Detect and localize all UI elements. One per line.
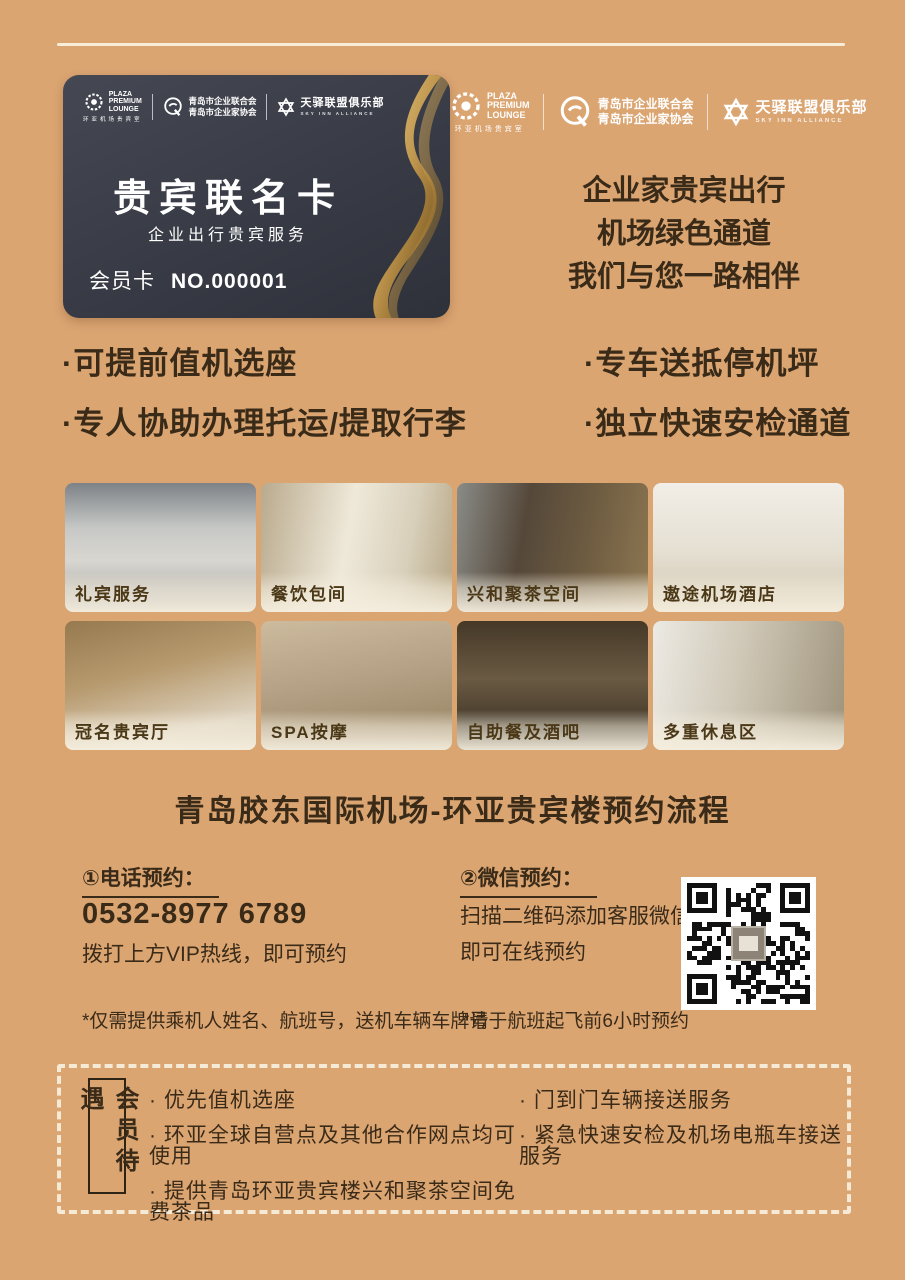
photo-gallery: 礼宾服务 餐饮包间 兴和聚茶空间 遨途机场酒店 冠名贵宾厅 SPA按摩 自助餐及… bbox=[65, 483, 846, 750]
top-divider-line bbox=[57, 43, 845, 46]
logo-qingdao-enterprise: 青岛市企业联合会 青岛市企业家协会 bbox=[162, 96, 257, 118]
logo-text: LOUNGE bbox=[109, 106, 142, 113]
qr-finder-top-left bbox=[687, 883, 717, 913]
tagline-line3: 我们与您一路相伴 bbox=[498, 256, 870, 299]
logo-plaza-premium-lounge: PLAZA PREMIUM LOUNGE 环亚机场贵宾室 bbox=[83, 91, 143, 123]
feature-list-right: ·专车送抵停机坪 ·独立快速安检通道 bbox=[584, 348, 851, 468]
logo-text-cn: 天驿联盟俱乐部 bbox=[756, 99, 868, 118]
logo-text: PREMIUM bbox=[109, 98, 142, 105]
logo-separator bbox=[707, 94, 708, 130]
feature-list-left: ·可提前值机选座 ·专人协助办理托运/提取行李 bbox=[62, 348, 467, 468]
tagline-line2: 机场绿色通道 bbox=[498, 213, 870, 256]
logo-qingdao-enterprise: 青岛市企业联合会 青岛市企业家协会 bbox=[557, 94, 694, 130]
logo-sky-inn-alliance: 天驿联盟俱乐部 SKY INN ALLIANCE bbox=[276, 97, 385, 117]
wechat-instruction-line2: 即可在线预约 bbox=[460, 936, 586, 966]
photo-label: 冠名贵宾厅 bbox=[65, 710, 256, 750]
footnote-right: *请于航班起飞前6小时预约 bbox=[462, 1006, 689, 1033]
wechat-booking-heading: ②微信预约： bbox=[460, 862, 597, 898]
membership-card: PLAZA PREMIUM LOUNGE 环亚机场贵宾室 青岛市 bbox=[63, 75, 450, 318]
benefit-item: · 环亚全球自营点及其他合作网点均可使用 bbox=[149, 1125, 529, 1167]
qr-finder-bottom-left bbox=[687, 974, 717, 1004]
logo-plaza-premium-lounge: PLAZA PREMIUM LOUNGE 环亚机场贵宾室 bbox=[450, 90, 530, 134]
photo-label: 礼宾服务 bbox=[65, 572, 256, 612]
card-subtitle: 企业出行贵宾服务 bbox=[63, 221, 393, 245]
benefit-item: · 优先值机选座 bbox=[149, 1090, 529, 1111]
gallery-photo-buffet-bar: 自助餐及酒吧 bbox=[457, 621, 648, 750]
tagline-line1: 企业家贵宾出行 bbox=[498, 170, 870, 213]
phone-number: 0532-8977 6789 bbox=[82, 898, 307, 931]
gallery-photo-spa: SPA按摩 bbox=[261, 621, 452, 750]
photo-label: 多重休息区 bbox=[653, 710, 844, 750]
gallery-photo-rest-area: 多重休息区 bbox=[653, 621, 844, 750]
photo-label: SPA按摩 bbox=[261, 710, 452, 750]
member-no: NO.000001 bbox=[171, 270, 287, 293]
logo-text-cn: 环亚机场贵宾室 bbox=[455, 124, 525, 134]
member-benefits-box: 会员待遇 · 优先值机选座 · 环亚全球自营点及其他合作网点均可使用 · 提供青… bbox=[57, 1064, 851, 1214]
gallery-photo-tea-space: 兴和聚茶空间 bbox=[457, 483, 648, 612]
qr-finder-top-right bbox=[780, 883, 810, 913]
sky-inn-star-icon bbox=[721, 97, 751, 127]
qr-center-logo bbox=[731, 926, 766, 961]
feature-item: ·专车送抵停机坪 bbox=[584, 348, 851, 379]
card-partner-logos: PLAZA PREMIUM LOUNGE 环亚机场贵宾室 青岛市 bbox=[83, 91, 433, 123]
gallery-photo-concierge: 礼宾服务 bbox=[65, 483, 256, 612]
benefits-list-right: · 门到门车辆接送服务 · 紧急快速安检及机场电瓶车接送服务 bbox=[519, 1090, 849, 1181]
wechat-instruction-line1: 扫描二维码添加客服微信 bbox=[460, 900, 691, 930]
wechat-qr-code bbox=[681, 877, 816, 1010]
plaza-premium-flower-icon bbox=[84, 92, 104, 112]
gallery-photo-airport-hotel: 遨途机场酒店 bbox=[653, 483, 844, 612]
feature-item: ·专人协助办理托运/提取行李 bbox=[62, 408, 467, 439]
benefits-vertical-label: 会员待遇 bbox=[88, 1078, 126, 1194]
logo-separator bbox=[152, 94, 153, 120]
benefit-item: · 提供青岛环亚贵宾楼兴和聚茶空间免费茶品 bbox=[149, 1181, 529, 1223]
logo-text-en: SKY INN ALLIANCE bbox=[756, 118, 868, 126]
photo-label: 兴和聚茶空间 bbox=[457, 572, 648, 612]
logo-text-cn: 青岛市企业家协会 bbox=[598, 112, 694, 127]
card-member-number: 会员卡NO.000001 bbox=[89, 265, 287, 295]
booking-section-title: 青岛胶东国际机场-环亚贵宾楼预约流程 bbox=[0, 786, 905, 830]
logo-sky-inn-alliance: 天驿联盟俱乐部 SKY INN ALLIANCE bbox=[721, 97, 868, 127]
logo-text-cn: 天驿联盟俱乐部 bbox=[301, 97, 385, 111]
benefits-list-left: · 优先值机选座 · 环亚全球自营点及其他合作网点均可使用 · 提供青岛环亚贵宾… bbox=[149, 1090, 529, 1237]
member-label: 会员卡 bbox=[89, 270, 155, 293]
card-title: 贵宾联名卡 bbox=[63, 167, 393, 222]
sky-inn-star-icon bbox=[276, 97, 296, 117]
q-enterprise-icon bbox=[162, 96, 184, 118]
flyer-page: PLAZA PREMIUM LOUNGE 环亚机场贵宾室 青岛市 bbox=[0, 0, 905, 1280]
logo-text-cn: 青岛市企业家协会 bbox=[189, 107, 257, 118]
logo-text-cn: 青岛市企业联合会 bbox=[598, 97, 694, 112]
logo-separator bbox=[266, 94, 267, 120]
logo-separator bbox=[543, 94, 544, 130]
logo-text: PLAZA bbox=[109, 91, 142, 98]
photo-label: 遨途机场酒店 bbox=[653, 572, 844, 612]
footnote-left: *仅需提供乘机人姓名、航班号，送机车辆车牌号 bbox=[82, 1006, 488, 1033]
phone-booking-heading: ①电话预约： bbox=[82, 862, 219, 898]
logo-text: LOUNGE bbox=[487, 111, 530, 120]
logo-text-cn: 青岛市企业联合会 bbox=[189, 96, 257, 107]
gallery-photo-dining-room: 餐饮包间 bbox=[261, 483, 452, 612]
header-partner-logos: PLAZA PREMIUM LOUNGE 环亚机场贵宾室 青岛市企业联合会 青岛… bbox=[450, 90, 885, 134]
feature-item: ·独立快速安检通道 bbox=[584, 408, 851, 439]
logo-text-en: SKY INN ALLIANCE bbox=[301, 111, 385, 117]
feature-item: ·可提前值机选座 bbox=[62, 348, 467, 379]
q-enterprise-icon bbox=[557, 94, 593, 130]
gallery-photo-vip-hall: 冠名贵宾厅 bbox=[65, 621, 256, 750]
tagline: 企业家贵宾出行 机场绿色通道 我们与您一路相伴 bbox=[498, 170, 870, 299]
benefit-item: · 紧急快速安检及机场电瓶车接送服务 bbox=[519, 1125, 849, 1167]
phone-note: 拨打上方VIP热线，即可预约 bbox=[82, 938, 347, 968]
photo-label: 餐饮包间 bbox=[261, 572, 452, 612]
benefit-item: · 门到门车辆接送服务 bbox=[519, 1090, 849, 1111]
photo-label: 自助餐及酒吧 bbox=[457, 710, 648, 750]
plaza-premium-flower-icon bbox=[450, 90, 482, 122]
logo-text-cn: 环亚机场贵宾室 bbox=[83, 115, 143, 123]
